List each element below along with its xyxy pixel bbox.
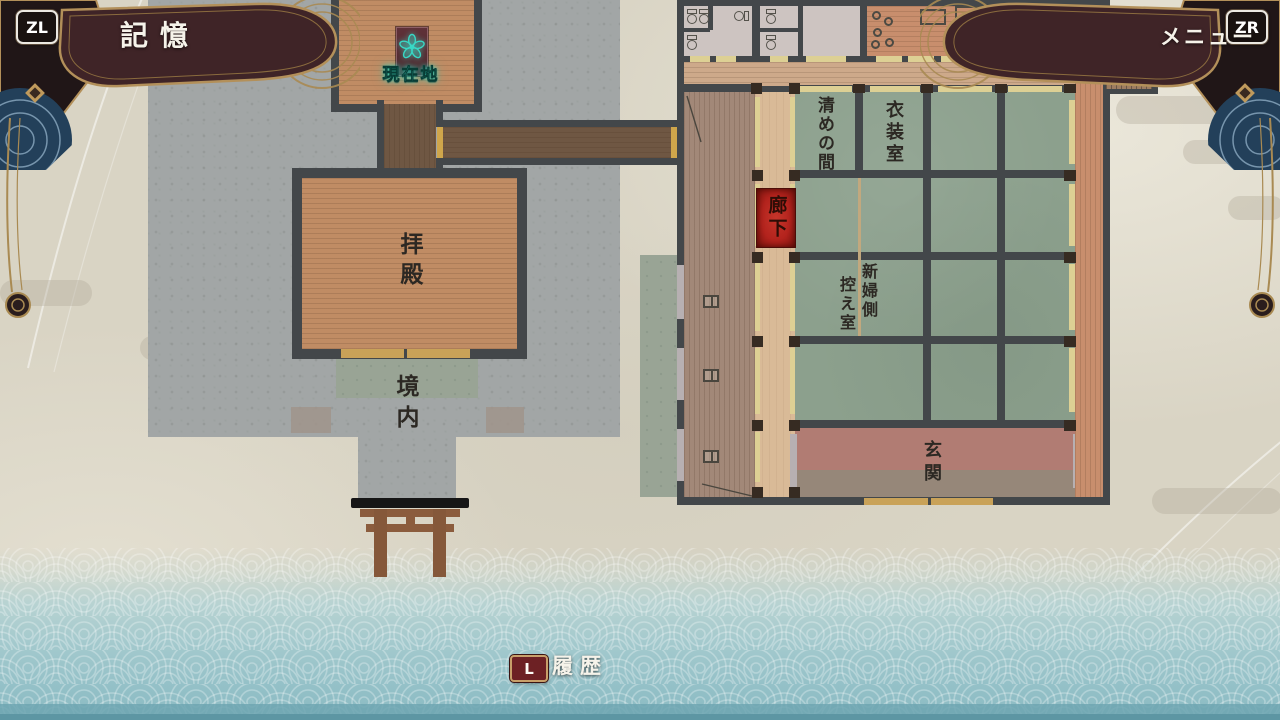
history-button[interactable]: 履歴	[552, 653, 632, 679]
purification-room-label: 清めの間	[810, 96, 832, 172]
zl-key-label: ZL	[26, 18, 48, 37]
zl-key-badge[interactable]: ZL	[16, 10, 58, 44]
corridor-highlight: 廊下	[756, 188, 796, 248]
entrance-label: 玄関	[916, 440, 940, 496]
l-key-badge[interactable]: L	[510, 655, 548, 682]
corridor-label: 廊下	[767, 195, 786, 241]
memory-button[interactable]: 記憶	[100, 16, 220, 56]
l-key-label: L	[524, 660, 534, 678]
floorplan-line-details	[677, 0, 1167, 510]
stairs-arrow-icon	[1141, 66, 1149, 76]
bride-room-label-col1: 新婦側	[856, 263, 876, 329]
venue-building: 清めの間 衣装室 新婦側 控え室 玄関 廊下	[0, 0, 1280, 720]
bride-room-label-col2: 控え室	[834, 276, 854, 342]
game-map-screen: 現在地 拝殿 境内	[0, 0, 1280, 720]
dressing-room-label: 衣装室	[880, 100, 902, 170]
menu-button[interactable]: メニュー	[1152, 20, 1264, 54]
